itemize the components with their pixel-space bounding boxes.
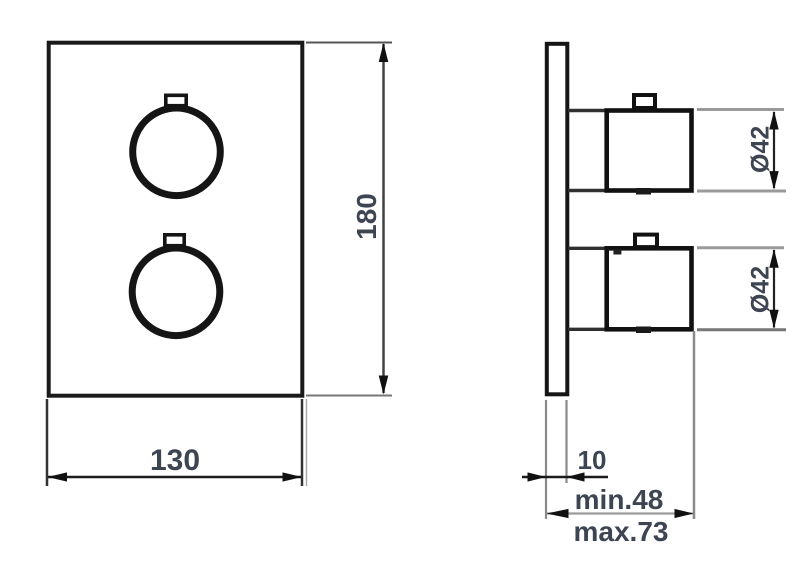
svg-text:10: 10 bbox=[578, 445, 607, 475]
svg-text:Ø42: Ø42 bbox=[747, 126, 775, 173]
svg-text:130: 130 bbox=[150, 444, 200, 477]
svg-text:Ø42: Ø42 bbox=[747, 266, 775, 313]
svg-text:min.48: min.48 bbox=[575, 484, 664, 515]
svg-text:180: 180 bbox=[351, 193, 382, 240]
svg-text:max.73: max.73 bbox=[574, 516, 669, 547]
